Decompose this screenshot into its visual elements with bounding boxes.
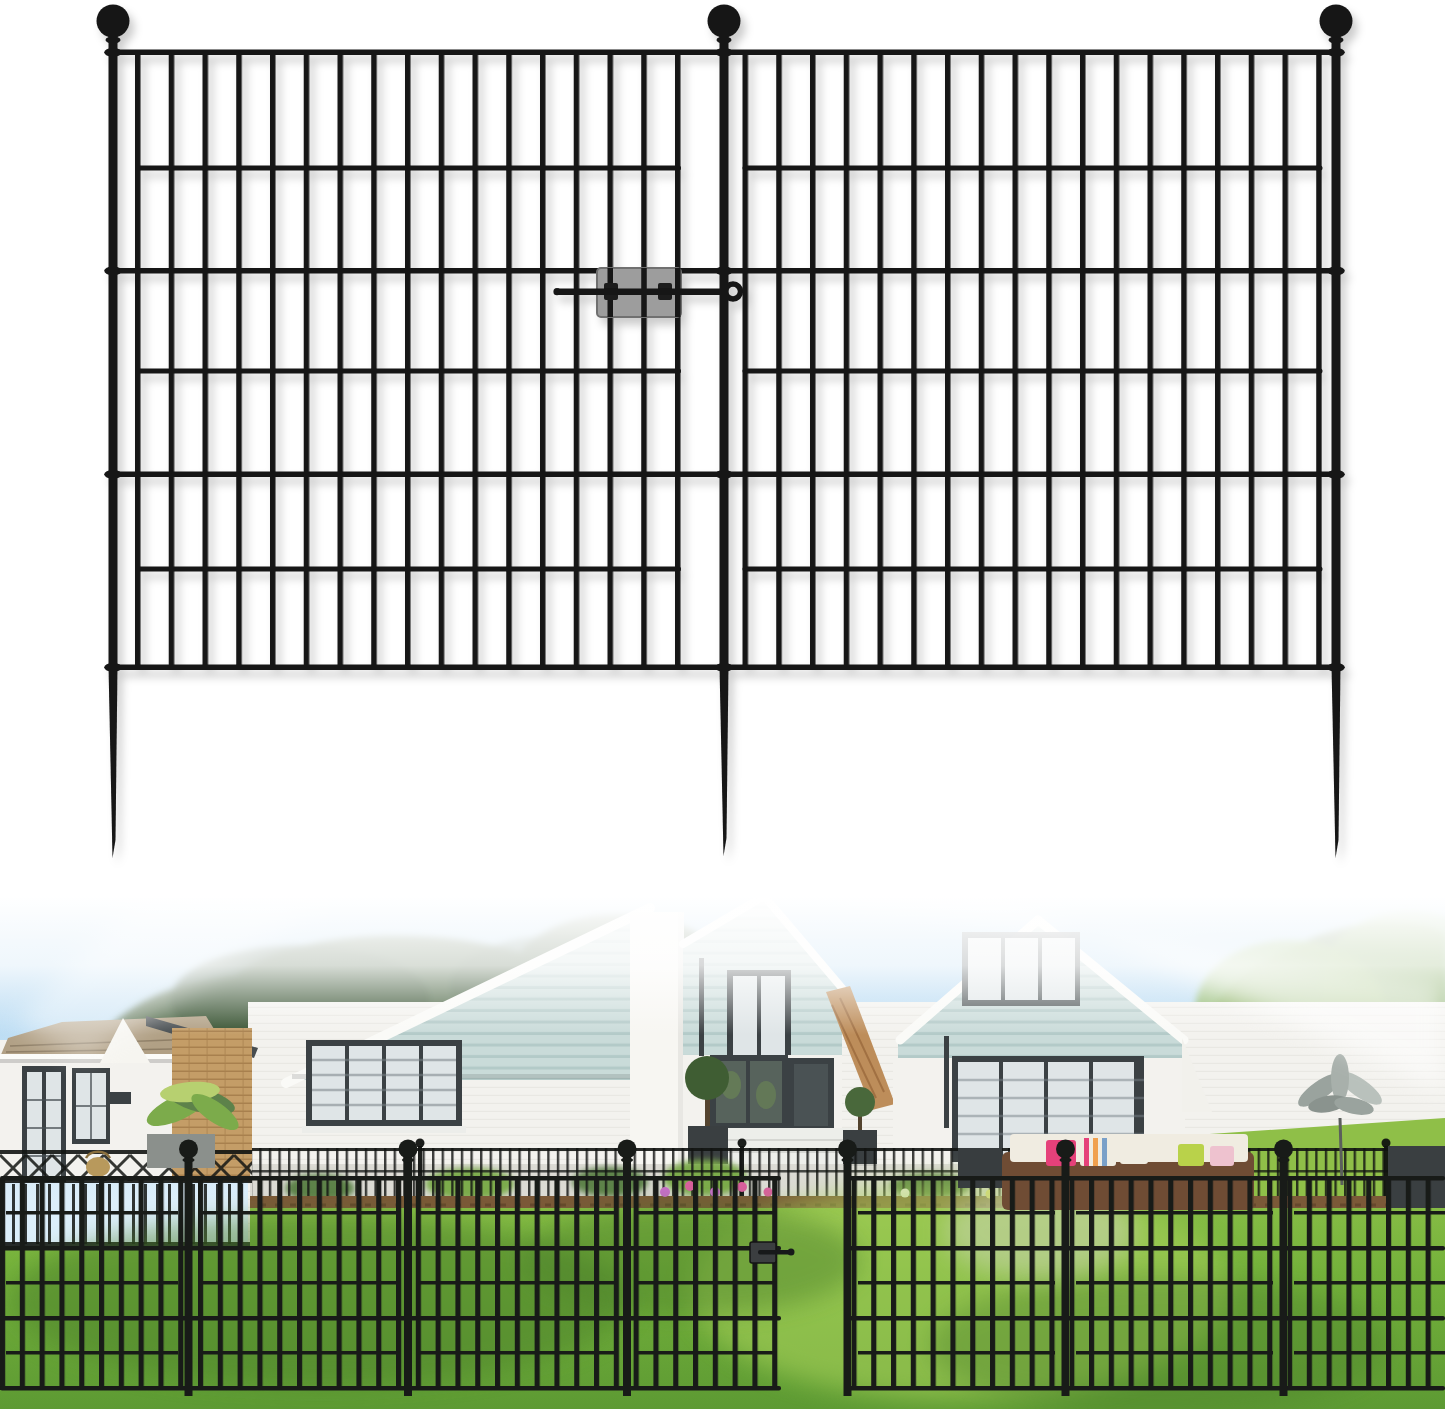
right-post — [1320, 5, 1353, 859]
topiary-ball — [685, 1056, 729, 1100]
left-rail-2 — [135, 166, 681, 171]
product-render — [97, 5, 1353, 859]
ball-finial — [179, 1140, 198, 1159]
ground-spike — [1332, 666, 1341, 858]
annex-window — [72, 1068, 110, 1144]
right-rail-4 — [743, 369, 1323, 374]
installed-photo — [0, 896, 1445, 1409]
ground-spike — [109, 666, 118, 858]
ball-finial — [708, 5, 741, 38]
latch-rod — [758, 1250, 790, 1255]
striped-pillow — [1080, 1138, 1116, 1166]
ball-finial — [1056, 1140, 1075, 1159]
hanging-basket — [86, 1157, 110, 1177]
center-post — [708, 5, 741, 857]
topiary-ball — [845, 1087, 875, 1117]
ball-finial — [838, 1140, 857, 1159]
pale-pink-pillow — [1210, 1146, 1234, 1166]
right-rail-2 — [743, 166, 1323, 171]
ball-finial — [1274, 1140, 1293, 1159]
right-rail-6 — [743, 567, 1323, 572]
entry-porch — [710, 1055, 854, 1164]
ball-finial — [399, 1140, 418, 1159]
ball-finial — [1320, 5, 1353, 38]
ball-finial — [97, 5, 130, 38]
ball-finial — [738, 1139, 747, 1148]
right-rail-3 — [720, 268, 1340, 274]
window-sill — [302, 1126, 466, 1133]
downspout — [944, 1036, 949, 1128]
left-rail-6 — [135, 567, 681, 572]
left-rail-4 — [135, 369, 681, 374]
ground-spike — [720, 666, 729, 856]
right-fence-panel — [720, 50, 1340, 671]
left-rail-5 — [115, 472, 728, 478]
ball-finial — [618, 1140, 637, 1159]
left-panel-bars — [134, 52, 706, 668]
fence-product-listing-image — [0, 0, 1445, 1409]
right-rail-7 — [720, 665, 1340, 671]
wide-window — [302, 1040, 466, 1133]
left-rail-7 — [115, 665, 728, 671]
left-post — [97, 5, 130, 859]
left-fence-panel — [115, 50, 728, 671]
right-panel-bars — [741, 52, 1322, 668]
top-white-fade — [0, 896, 1445, 1035]
house-sign-plaque — [110, 1092, 131, 1104]
right-rail-1 — [720, 50, 1340, 56]
photo-foreground-fence — [0, 1140, 1445, 1397]
left-rail-1 — [115, 50, 728, 56]
lime-pillow — [1178, 1144, 1204, 1166]
white-pillow — [1120, 1140, 1148, 1164]
right-rail-5 — [720, 472, 1340, 478]
latch-rod — [556, 289, 728, 296]
scene-svg — [0, 0, 1445, 1409]
